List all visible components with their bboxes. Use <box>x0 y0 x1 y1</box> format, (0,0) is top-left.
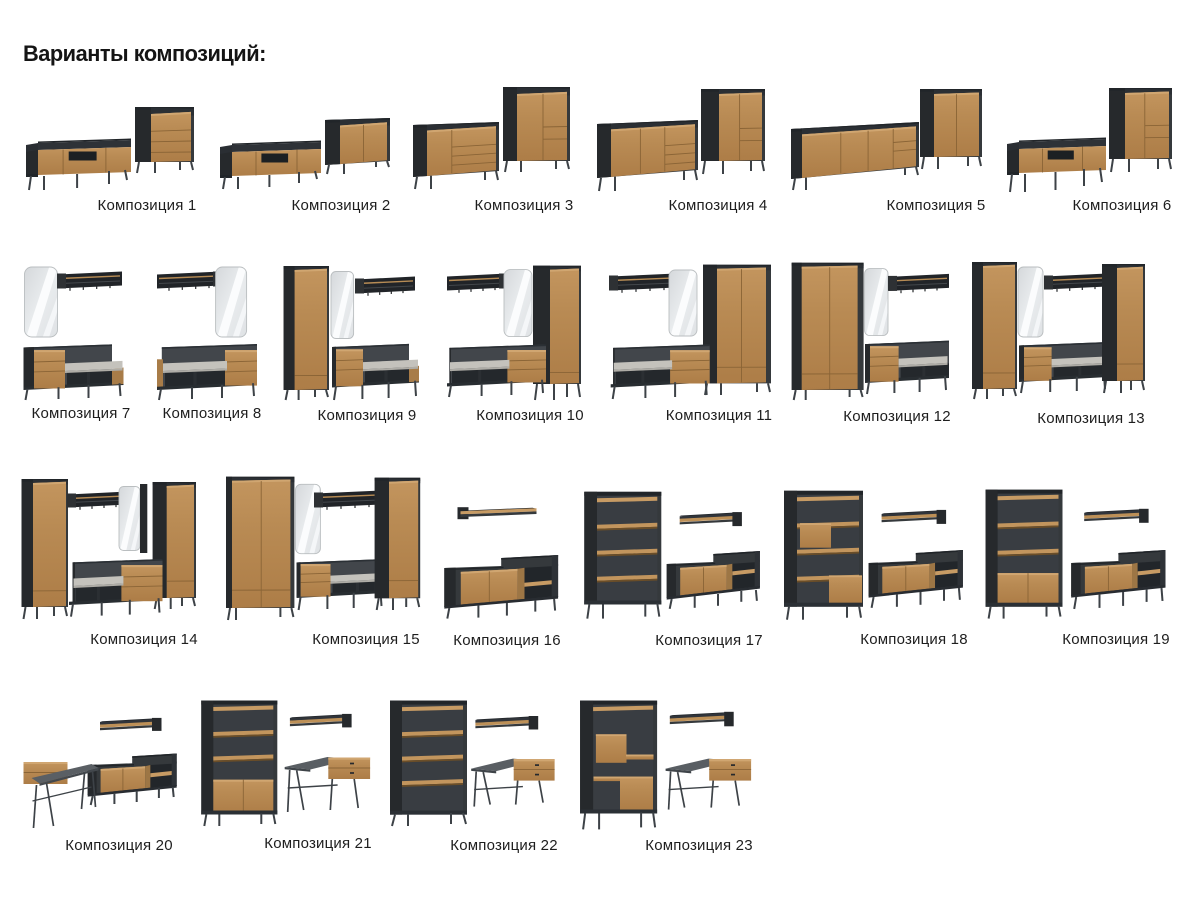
svg-text:Композиция 13: Композиция 13 <box>1037 410 1145 427</box>
svg-text:Композиция 8: Композиция 8 <box>163 405 262 422</box>
svg-text:Композиция 17: Композиция 17 <box>655 632 763 649</box>
svg-text:Композиция 16: Композиция 16 <box>453 632 561 649</box>
svg-text:Варианты композиций:: Варианты композиций: <box>23 41 266 66</box>
svg-text:Композиция 19: Композиция 19 <box>1062 631 1170 648</box>
svg-text:Композиция 12: Композиция 12 <box>843 408 951 425</box>
svg-text:Композиция 15: Композиция 15 <box>312 631 420 648</box>
svg-text:Композиция 3: Композиция 3 <box>475 197 574 214</box>
svg-text:Композиция 18: Композиция 18 <box>860 631 968 648</box>
svg-text:Композиция 7: Композиция 7 <box>32 405 131 422</box>
svg-text:Композиция 4: Композиция 4 <box>669 197 768 214</box>
svg-text:Композиция 10: Композиция 10 <box>476 407 584 424</box>
svg-text:Композиция 1: Композиция 1 <box>98 197 197 214</box>
svg-text:Композиция 5: Композиция 5 <box>887 197 986 214</box>
svg-text:Композиция 2: Композиция 2 <box>292 197 391 214</box>
svg-text:Композиция 11: Композиция 11 <box>666 407 772 424</box>
svg-text:Композиция 23: Композиция 23 <box>645 837 753 854</box>
svg-text:Композиция 9: Композиция 9 <box>318 407 417 424</box>
svg-text:Композиция 20: Композиция 20 <box>65 837 173 854</box>
svg-text:Композиция 6: Композиция 6 <box>1073 197 1172 214</box>
svg-text:Композиция 14: Композиция 14 <box>90 631 198 648</box>
svg-text:Композиция 21: Композиция 21 <box>264 835 372 852</box>
svg-text:Композиция 22: Композиция 22 <box>450 837 558 854</box>
